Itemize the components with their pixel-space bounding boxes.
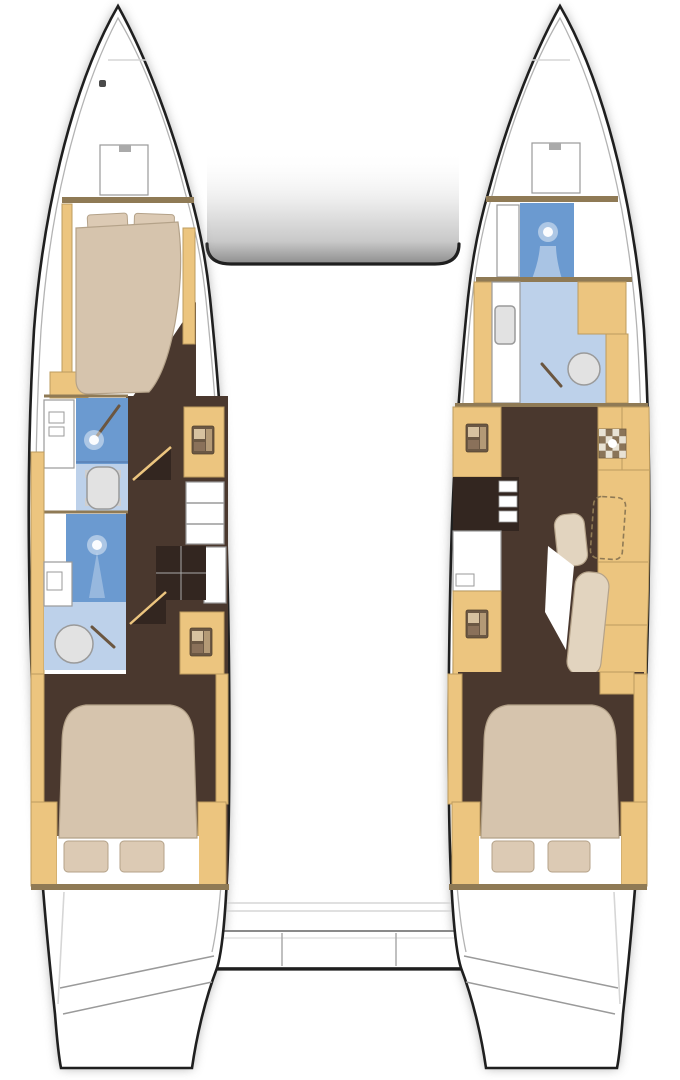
pillow [64, 841, 108, 872]
shower-head-icon [84, 430, 104, 450]
foredeck-shadow [207, 150, 459, 264]
hatch-handle [119, 145, 131, 152]
double-berth [481, 705, 619, 838]
companionway-steps-icon [186, 482, 224, 544]
starboard-hull [448, 6, 650, 1068]
deck-hatch-icon [532, 143, 580, 193]
lowered-table [156, 546, 206, 600]
port-hull [29, 6, 230, 1068]
forward-bulkhead [62, 197, 194, 203]
double-berth [59, 705, 197, 838]
hob-icon [599, 429, 626, 458]
sink-unit-icon [466, 610, 488, 638]
sink-unit-icon [192, 426, 214, 454]
starboard-forward-head [474, 282, 628, 403]
pillow [120, 841, 164, 872]
hatch-handle [549, 143, 561, 150]
floor-plan-stage [0, 0, 680, 1080]
deck-hatch-icon [100, 145, 148, 195]
wash-basin-icon [568, 353, 600, 385]
catamaran-floor-plan [0, 0, 680, 1080]
shower-head-icon [538, 222, 558, 242]
sink-unit-icon [466, 424, 488, 452]
companionway-steps-icon [453, 477, 519, 531]
toilet-icon [85, 467, 121, 509]
pillow [492, 841, 534, 872]
wash-basin-icon [55, 625, 93, 663]
forward-bulkhead [486, 196, 618, 202]
sink-unit-icon [190, 628, 212, 656]
deck-fitting [99, 80, 106, 87]
pillow [548, 841, 590, 872]
